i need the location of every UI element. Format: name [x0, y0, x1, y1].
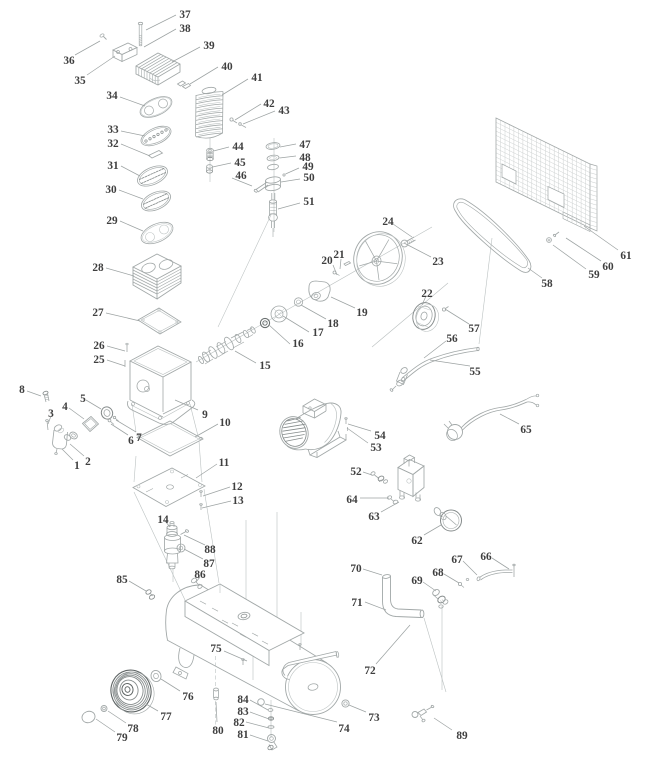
- svg-text:67: 67: [451, 554, 463, 566]
- svg-text:73: 73: [368, 712, 380, 724]
- svg-text:13: 13: [232, 495, 244, 507]
- svg-text:62: 62: [411, 535, 423, 547]
- svg-text:26: 26: [93, 340, 105, 352]
- svg-text:55: 55: [469, 366, 481, 378]
- svg-text:16: 16: [292, 338, 304, 350]
- svg-text:60: 60: [602, 261, 614, 273]
- svg-text:53: 53: [370, 442, 382, 454]
- svg-text:78: 78: [127, 723, 139, 735]
- svg-text:15: 15: [259, 360, 271, 372]
- svg-text:12: 12: [231, 481, 243, 493]
- svg-text:52: 52: [350, 466, 362, 478]
- svg-text:84: 84: [237, 694, 249, 706]
- svg-text:29: 29: [106, 215, 118, 227]
- svg-text:30: 30: [105, 184, 117, 196]
- svg-text:44: 44: [232, 141, 244, 153]
- svg-text:18: 18: [327, 318, 339, 330]
- svg-text:40: 40: [221, 61, 233, 73]
- svg-text:56: 56: [446, 333, 458, 345]
- svg-text:72: 72: [364, 665, 376, 677]
- svg-text:66: 66: [480, 551, 492, 563]
- svg-text:70: 70: [350, 563, 362, 575]
- svg-text:42: 42: [263, 98, 275, 110]
- svg-text:9: 9: [202, 409, 208, 421]
- svg-text:69: 69: [411, 575, 423, 587]
- svg-text:36: 36: [63, 55, 75, 67]
- svg-text:74: 74: [338, 723, 350, 735]
- svg-text:2: 2: [85, 456, 91, 468]
- svg-text:34: 34: [106, 90, 118, 102]
- svg-text:20: 20: [321, 255, 333, 267]
- svg-text:85: 85: [116, 574, 128, 586]
- svg-text:86: 86: [194, 569, 206, 581]
- svg-text:5: 5: [80, 393, 86, 405]
- svg-text:3: 3: [48, 408, 54, 420]
- svg-text:58: 58: [541, 278, 553, 290]
- svg-text:68: 68: [432, 567, 444, 579]
- svg-text:82: 82: [233, 717, 245, 729]
- svg-text:54: 54: [374, 430, 386, 442]
- svg-text:46: 46: [235, 170, 247, 182]
- svg-text:81: 81: [237, 729, 249, 741]
- svg-text:31: 31: [107, 160, 119, 172]
- svg-text:25: 25: [93, 354, 105, 366]
- svg-text:11: 11: [219, 457, 230, 469]
- svg-text:39: 39: [203, 40, 215, 52]
- svg-text:38: 38: [179, 23, 191, 35]
- svg-text:57: 57: [468, 323, 480, 335]
- svg-text:80: 80: [212, 725, 224, 737]
- svg-text:59: 59: [588, 269, 600, 281]
- svg-text:10: 10: [219, 417, 231, 429]
- svg-text:77: 77: [160, 711, 172, 723]
- svg-text:51: 51: [303, 196, 315, 208]
- svg-text:75: 75: [210, 643, 222, 655]
- svg-text:61: 61: [620, 250, 632, 262]
- svg-text:17: 17: [312, 327, 324, 339]
- svg-text:8: 8: [19, 384, 25, 396]
- svg-text:33: 33: [107, 124, 119, 136]
- svg-text:21: 21: [333, 249, 345, 261]
- svg-text:71: 71: [351, 597, 363, 609]
- svg-text:63: 63: [368, 511, 380, 523]
- svg-text:65: 65: [520, 424, 532, 436]
- svg-text:7: 7: [136, 432, 142, 444]
- svg-text:4: 4: [62, 401, 68, 413]
- svg-text:32: 32: [107, 138, 119, 150]
- svg-text:23: 23: [432, 256, 444, 268]
- svg-text:64: 64: [346, 494, 358, 506]
- svg-text:1: 1: [74, 460, 80, 472]
- svg-text:50: 50: [303, 172, 315, 184]
- svg-text:79: 79: [116, 732, 128, 744]
- svg-text:43: 43: [278, 105, 290, 117]
- svg-text:37: 37: [179, 9, 191, 21]
- svg-text:27: 27: [92, 307, 104, 319]
- svg-text:6: 6: [128, 435, 134, 447]
- svg-text:19: 19: [356, 307, 368, 319]
- svg-text:14: 14: [157, 514, 169, 526]
- svg-text:35: 35: [74, 75, 86, 87]
- svg-text:28: 28: [92, 262, 104, 274]
- svg-text:45: 45: [234, 157, 246, 169]
- svg-text:47: 47: [299, 139, 311, 151]
- svg-text:89: 89: [456, 730, 468, 742]
- svg-text:41: 41: [251, 72, 263, 84]
- svg-text:24: 24: [382, 216, 394, 228]
- svg-text:22: 22: [421, 288, 433, 300]
- svg-text:88: 88: [204, 544, 216, 556]
- svg-text:76: 76: [182, 691, 194, 703]
